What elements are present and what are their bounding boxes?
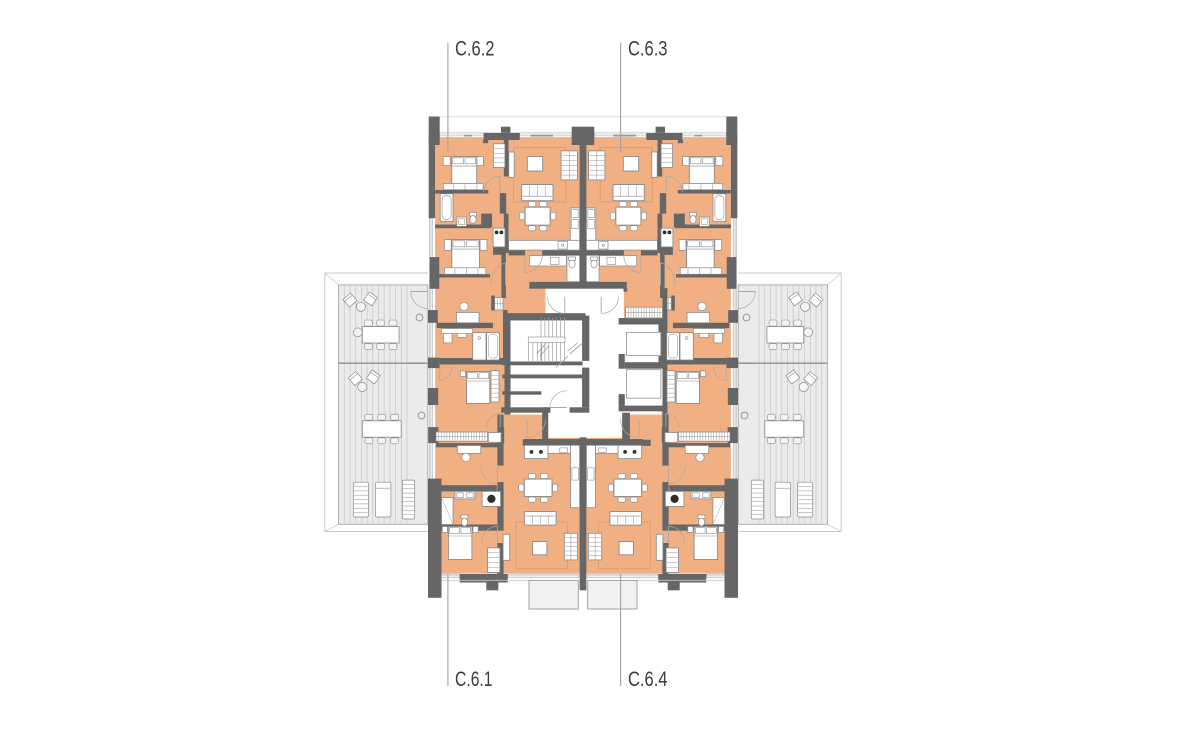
- svg-text:C.6.3: C.6.3: [628, 37, 668, 61]
- svg-text:C.6.1: C.6.1: [455, 667, 493, 691]
- svg-text:C.6.4: C.6.4: [628, 667, 668, 691]
- svg-text:C.6.2: C.6.2: [455, 37, 495, 61]
